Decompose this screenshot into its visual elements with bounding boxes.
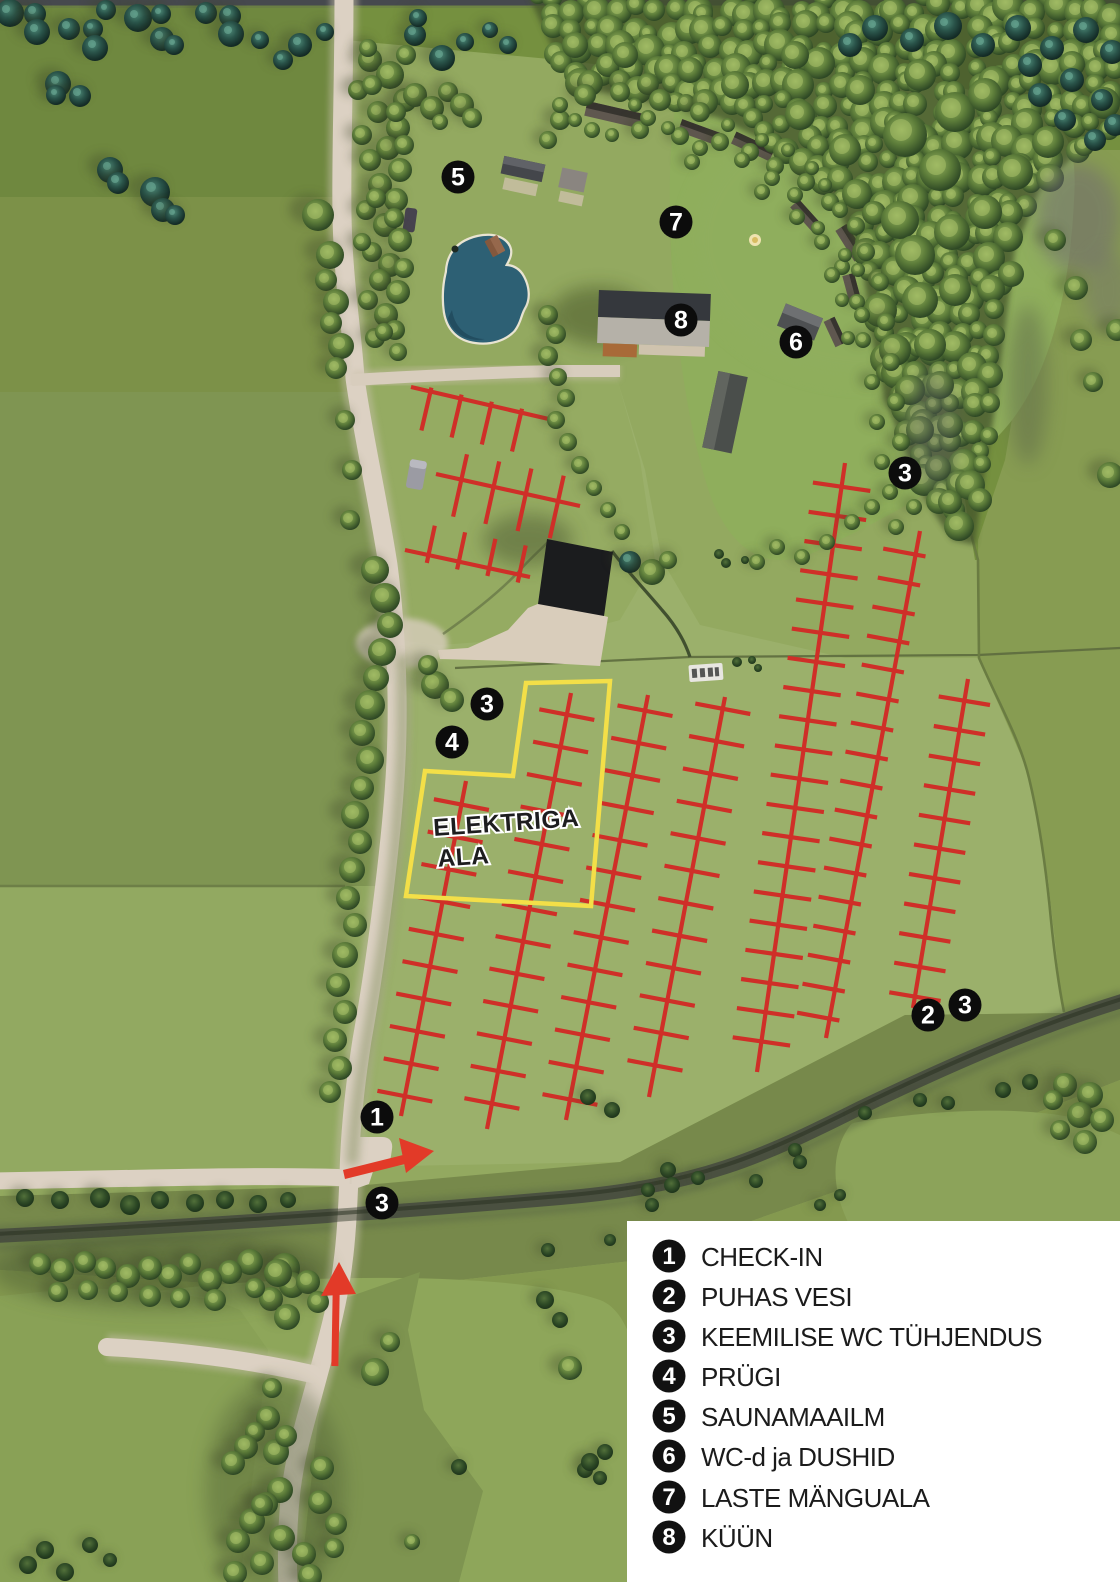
svg-text:1: 1 (662, 1243, 675, 1270)
svg-text:SAUNAMAAILM: SAUNAMAAILM (701, 1402, 885, 1432)
svg-text:1: 1 (370, 1104, 384, 1132)
svg-text:3: 3 (662, 1323, 675, 1350)
svg-text:PUHAS VESI: PUHAS VESI (701, 1282, 852, 1312)
svg-text:5: 5 (662, 1403, 675, 1430)
svg-text:4: 4 (662, 1363, 676, 1390)
svg-text:LASTE MÄNGUALA: LASTE MÄNGUALA (701, 1483, 931, 1513)
svg-text:ALA: ALA (437, 842, 491, 873)
svg-text:6: 6 (789, 329, 803, 357)
svg-text:PRÜGI: PRÜGI (701, 1362, 781, 1392)
svg-text:3: 3 (898, 460, 912, 488)
svg-text:7: 7 (669, 209, 683, 237)
svg-text:5: 5 (451, 164, 465, 192)
svg-text:8: 8 (662, 1524, 675, 1551)
svg-text:4: 4 (445, 729, 459, 757)
svg-text:WC-d ja DUSHID: WC-d ja DUSHID (701, 1442, 895, 1472)
svg-text:3: 3 (480, 691, 494, 719)
svg-text:2: 2 (662, 1283, 675, 1310)
svg-text:6: 6 (662, 1443, 675, 1470)
svg-text:3: 3 (958, 992, 972, 1020)
svg-text:CHECK-IN: CHECK-IN (701, 1242, 823, 1272)
svg-text:3: 3 (375, 1190, 389, 1218)
svg-text:8: 8 (674, 307, 688, 335)
svg-text:2: 2 (921, 1002, 935, 1030)
svg-text:7: 7 (662, 1484, 675, 1511)
svg-text:KÜÜN: KÜÜN (701, 1523, 773, 1553)
svg-text:KEEMILISE WC TÜHJENDUS: KEEMILISE WC TÜHJENDUS (701, 1322, 1042, 1352)
